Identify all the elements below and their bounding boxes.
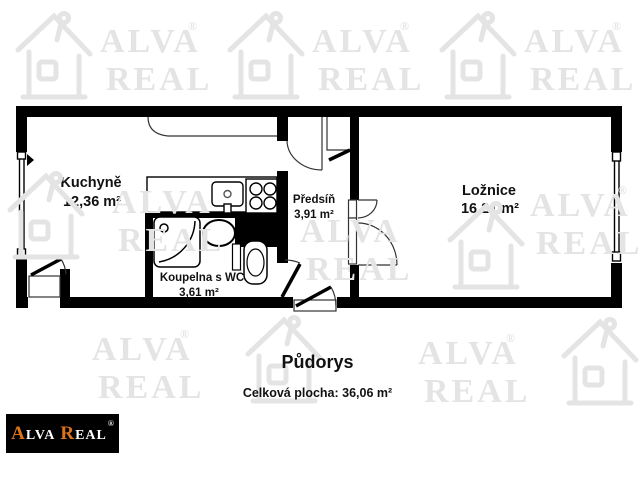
wall-balcony-stub <box>60 269 70 297</box>
stove-burner <box>264 197 276 209</box>
logo-text-lva: LVA <box>26 428 55 443</box>
logo-letter-r: R <box>60 423 75 444</box>
wall-bathroom-left <box>145 212 153 298</box>
wall-right-lower <box>611 263 622 308</box>
alva-real-logo: ALVAREAL® <box>6 414 119 453</box>
bathroom-door-panel <box>282 264 300 297</box>
wall-left-upper <box>16 106 27 152</box>
kitchen-door-arc <box>287 141 322 170</box>
floorplan-page: Kuchyně 12,36 m² Ložnice 16,21 m² Předsí… <box>0 0 640 480</box>
bedroom-door-sidelight <box>349 200 357 218</box>
room-name-loznice: Ložnice <box>462 183 516 199</box>
wall-marker-arrow <box>27 154 34 166</box>
room-name-predsin: Předsíň <box>293 194 335 206</box>
registered-trademark-icon: ® <box>108 419 115 428</box>
room-name-kuchyne: Kuchyně <box>60 175 121 191</box>
sink-drain <box>224 204 231 213</box>
shower-drain-icon <box>160 224 168 232</box>
stove-burner <box>250 197 262 209</box>
plan-title: Půdorys <box>160 352 475 373</box>
washbasin <box>203 220 235 246</box>
bedroom-door-small-arc <box>358 200 377 218</box>
kitchen-passage-line <box>148 117 277 136</box>
logo-text-eal: EAL <box>75 428 107 443</box>
wall-hall-left-stub <box>277 117 288 141</box>
window-bedroom-right <box>613 152 621 261</box>
bedroom-door-leaf <box>349 218 357 264</box>
room-name-koupelna: Koupelna s WC <box>160 272 244 284</box>
wall-top <box>16 106 622 117</box>
balcony-threshold <box>29 276 60 297</box>
toilet-cistern <box>233 244 241 270</box>
kitchen-counter <box>147 177 277 213</box>
bedroom-door-arc <box>358 223 397 265</box>
stove-burner <box>264 183 276 195</box>
window-kitchen-left <box>18 152 26 256</box>
toilet-seat <box>247 249 264 276</box>
balcony-door-panel <box>31 259 61 275</box>
room-area-kuchyne: 12,36 m² <box>63 194 121 210</box>
room-area-loznice: 16,21 m² <box>461 201 519 217</box>
wall-bedroom-upper <box>350 117 359 200</box>
room-area-koupelna: 3,61 m² <box>179 287 219 299</box>
wall-bedroom-lower <box>350 265 359 308</box>
wall-bottom-right <box>337 297 622 308</box>
sink-faucet-icon <box>224 191 231 198</box>
hall-closet-door-panel <box>329 150 350 160</box>
floorplan-drawing: Kuchyně 12,36 m² Ložnice 16,21 m² Předsí… <box>0 0 640 480</box>
wall-bottom-center <box>60 297 293 308</box>
wall-right-upper <box>611 106 622 152</box>
total-area-label: Celková plocha: 36,06 m² <box>160 386 475 400</box>
room-area-predsin: 3,91 m² <box>294 209 334 221</box>
wall-left-lower <box>16 256 27 308</box>
logo-letter-a: A <box>11 423 26 444</box>
hall-closet-outline <box>327 117 350 150</box>
stove-burner <box>250 183 262 195</box>
